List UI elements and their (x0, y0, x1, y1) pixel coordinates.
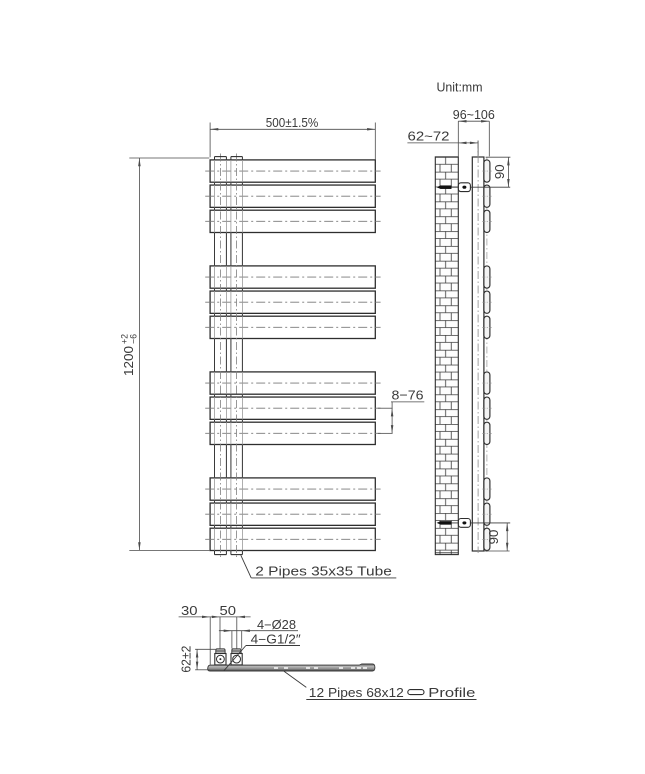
svg-text:Unit:mm: Unit:mm (437, 80, 483, 95)
svg-text:30: 30 (181, 604, 198, 618)
svg-text:8−76: 8−76 (392, 387, 424, 402)
svg-text:−6: −6 (129, 334, 139, 344)
svg-text:50: 50 (220, 604, 237, 618)
svg-text:Profile: Profile (428, 685, 475, 700)
svg-text:4−G1/2″: 4−G1/2″ (251, 633, 302, 647)
svg-text:62±2: 62±2 (180, 646, 194, 673)
svg-text:1200: 1200 (121, 346, 136, 376)
svg-text:500±1.5%: 500±1.5% (266, 115, 319, 130)
svg-text:90: 90 (492, 164, 507, 179)
svg-text:12 Pipes 68x12: 12 Pipes 68x12 (309, 685, 404, 700)
svg-text:62~72: 62~72 (408, 128, 450, 143)
svg-text:96~106: 96~106 (453, 107, 495, 122)
svg-text:90: 90 (486, 530, 501, 545)
svg-text:4−Ø28: 4−Ø28 (257, 618, 296, 632)
svg-text:2 Pipes 35x35 Tube: 2 Pipes 35x35 Tube (255, 563, 391, 578)
